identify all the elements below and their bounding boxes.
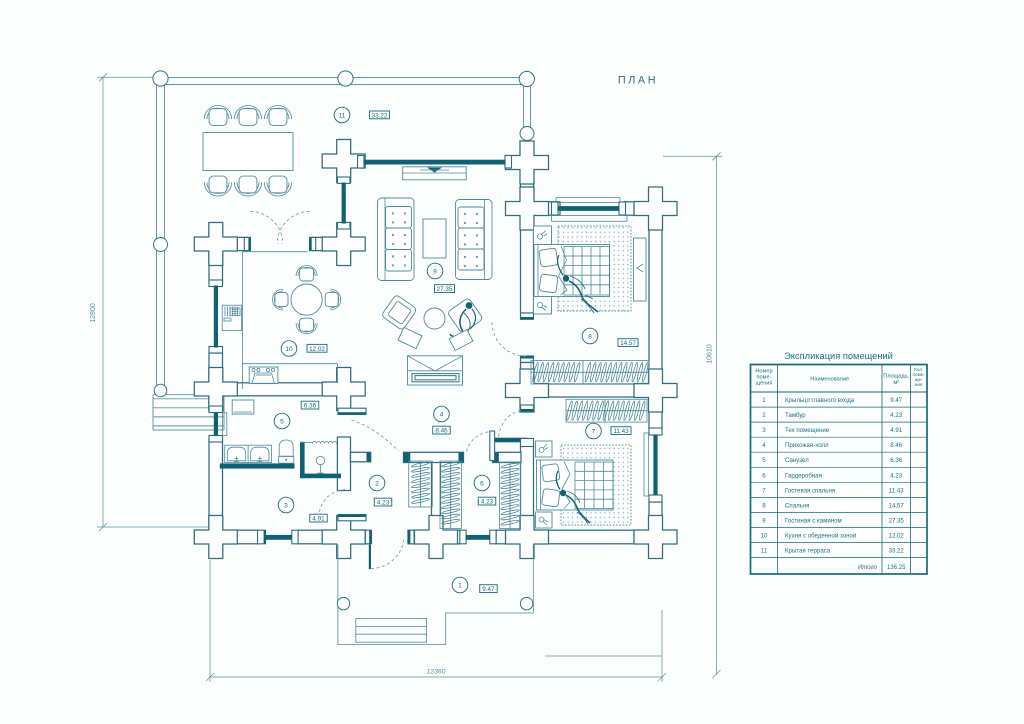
svg-text:4: 4 [440, 411, 444, 418]
svg-text:12.02: 12.02 [889, 533, 905, 540]
svg-text:4.23: 4.23 [890, 472, 902, 479]
svg-text:4.91: 4.91 [312, 516, 325, 523]
svg-text:Экспликация помещений: Экспликация помещений [784, 351, 893, 361]
svg-text:6.36: 6.36 [304, 403, 317, 410]
svg-text:136.25: 136.25 [887, 564, 906, 571]
svg-text:Гостевая спальня: Гостевая спальня [785, 487, 835, 494]
svg-text:Тех помещение: Тех помещение [785, 427, 830, 434]
svg-text:Площадь,: Площадь, [883, 374, 909, 380]
svg-text:33.22: 33.22 [372, 112, 388, 119]
svg-text:Итого: Итого [858, 564, 878, 571]
svg-text:11: 11 [761, 548, 768, 555]
svg-text:3: 3 [284, 502, 288, 509]
svg-text:6.36: 6.36 [890, 457, 902, 464]
svg-text:5: 5 [280, 418, 284, 425]
svg-text:Крытая терраса: Крытая терраса [785, 548, 831, 555]
svg-text:4.23: 4.23 [481, 499, 494, 506]
svg-text:Прихожая-холл: Прихожая-холл [785, 442, 829, 449]
svg-text:11.43: 11.43 [613, 428, 629, 435]
svg-text:4.23: 4.23 [890, 412, 902, 419]
svg-text:8.46: 8.46 [890, 442, 902, 449]
svg-text:14.57: 14.57 [889, 502, 905, 509]
svg-text:Крыльцо главного входа: Крыльцо главного входа [785, 397, 855, 404]
svg-text:Гардеробная: Гардеробная [785, 472, 822, 479]
svg-text:9.47: 9.47 [890, 397, 902, 404]
svg-text:9.47: 9.47 [482, 586, 495, 593]
svg-text:Санузел: Санузел [785, 457, 809, 464]
svg-text:м²: м² [893, 380, 899, 386]
svg-text:6: 6 [480, 480, 484, 487]
svg-text:8: 8 [588, 333, 592, 340]
svg-text:10: 10 [285, 346, 293, 353]
svg-text:14.57: 14.57 [620, 340, 636, 347]
svg-text:33.22: 33.22 [889, 548, 905, 555]
svg-text:9: 9 [433, 268, 437, 275]
svg-text:11.43: 11.43 [889, 487, 904, 494]
svg-text:2: 2 [375, 480, 379, 487]
svg-text:4.91: 4.91 [890, 427, 902, 434]
svg-text:27.35: 27.35 [437, 286, 453, 293]
svg-text:8.46: 8.46 [435, 428, 448, 435]
svg-text:10610: 10610 [707, 344, 714, 364]
svg-text:щения: щения [756, 381, 773, 387]
svg-text:ния: ния [915, 382, 923, 387]
svg-text:12360: 12360 [427, 669, 446, 676]
svg-text:Спальня: Спальня [785, 502, 810, 509]
svg-text:Кухня с обеденной зоной: Кухня с обеденной зоной [785, 533, 856, 540]
svg-text:Тамбур: Тамбур [785, 412, 806, 419]
svg-text:ПЛАН: ПЛАН [618, 75, 658, 87]
svg-text:Наименование: Наименование [810, 377, 849, 383]
svg-text:11: 11 [339, 112, 346, 119]
svg-text:12.02: 12.02 [309, 346, 325, 353]
svg-text:Гостиная с камином: Гостиная с камином [785, 517, 842, 524]
svg-text:10: 10 [761, 533, 768, 540]
svg-text:4.23: 4.23 [377, 500, 390, 507]
svg-text:1: 1 [458, 582, 462, 589]
svg-text:7: 7 [592, 428, 596, 435]
svg-text:27.35: 27.35 [889, 517, 905, 524]
svg-text:12800: 12800 [90, 303, 97, 323]
